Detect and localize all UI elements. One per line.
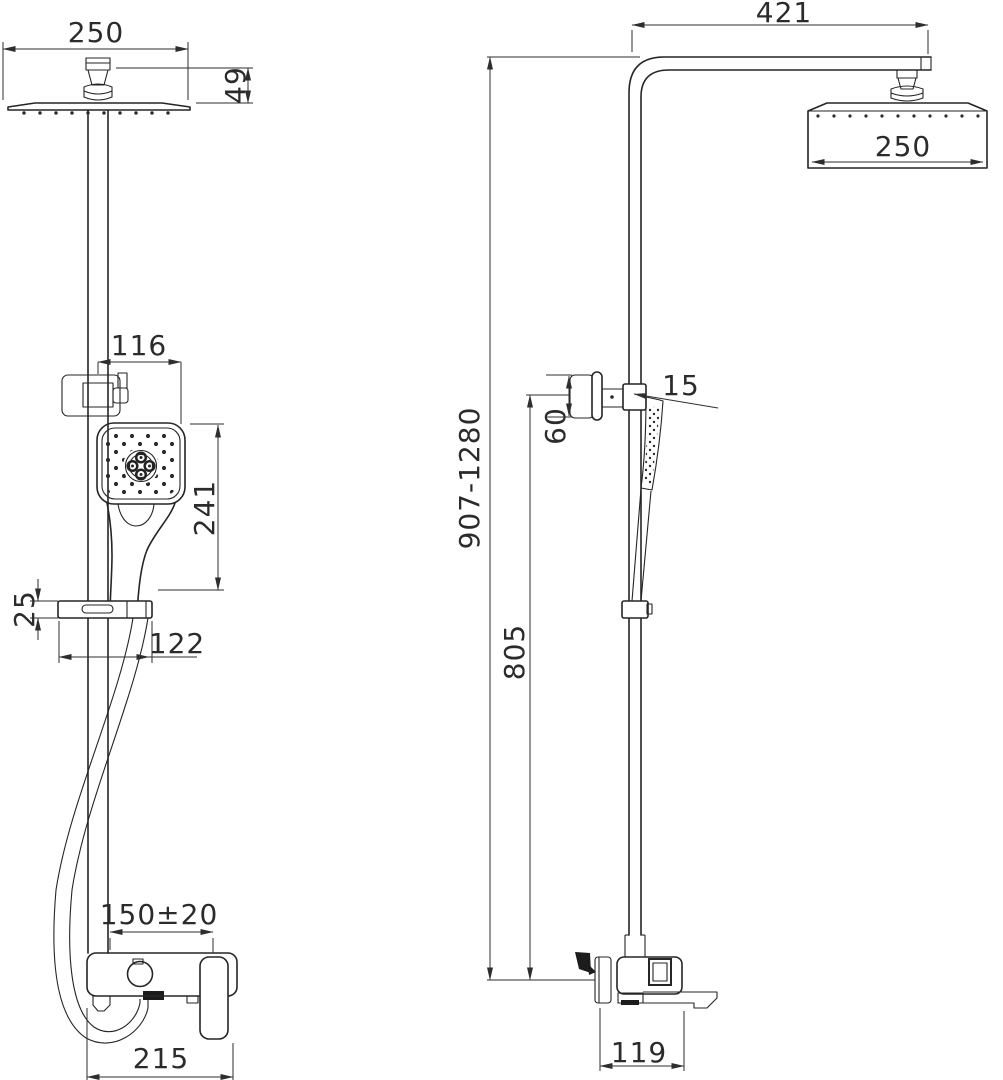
front-overhead-shower [8,58,190,115]
side-hand-shower [632,397,663,601]
dim-side-bracket-height: 60 [542,407,570,445]
dim-front-handshower-length: 241 [191,480,219,536]
side-wall-bracket [570,372,646,420]
dim-side-column-height: 805 [501,624,529,680]
front-column [88,110,108,953]
front-view [8,58,237,1043]
front-hand-shower [97,423,185,617]
dim-front-shelf-width: 122 [149,630,205,658]
dim-side-mixer-depth: 119 [611,1039,667,1067]
side-view [570,57,987,1008]
dim-side-arm-length: 421 [756,0,812,27]
dim-side-head-depth: 250 [875,133,931,161]
dim-side-handshower-angle: 15 [662,372,700,400]
dim-side-total-height: 907-1280 [456,407,484,550]
wall-plate [595,957,611,1003]
front-head-nozzles [22,111,169,114]
front-shelf [58,601,152,618]
side-column-arm [629,57,931,935]
side-head-nozzles [816,114,979,117]
dim-front-head-width: 250 [68,19,124,47]
drawing-canvas: 250 49 116 241 25 122 150±20 215 421 250… [0,0,1003,1080]
dim-front-handshower-offset: 116 [111,332,167,360]
front-slide-bracket [62,373,128,416]
dim-front-mixer-width: 215 [133,1045,189,1073]
front-mixer [87,953,237,1039]
front-hose [54,618,164,1043]
side-ball-joint [891,70,923,101]
side-slide-clamp [622,601,652,618]
dim-front-spout-reach: 150±20 [100,901,219,929]
diverter-knob [128,962,153,987]
side-mixer [575,935,717,1008]
side-dimensions [487,25,983,1071]
dim-front-head-height: 49 [222,66,250,104]
dim-front-shelf-thickness: 25 [11,590,39,628]
mixer-handle-front [200,957,228,1039]
